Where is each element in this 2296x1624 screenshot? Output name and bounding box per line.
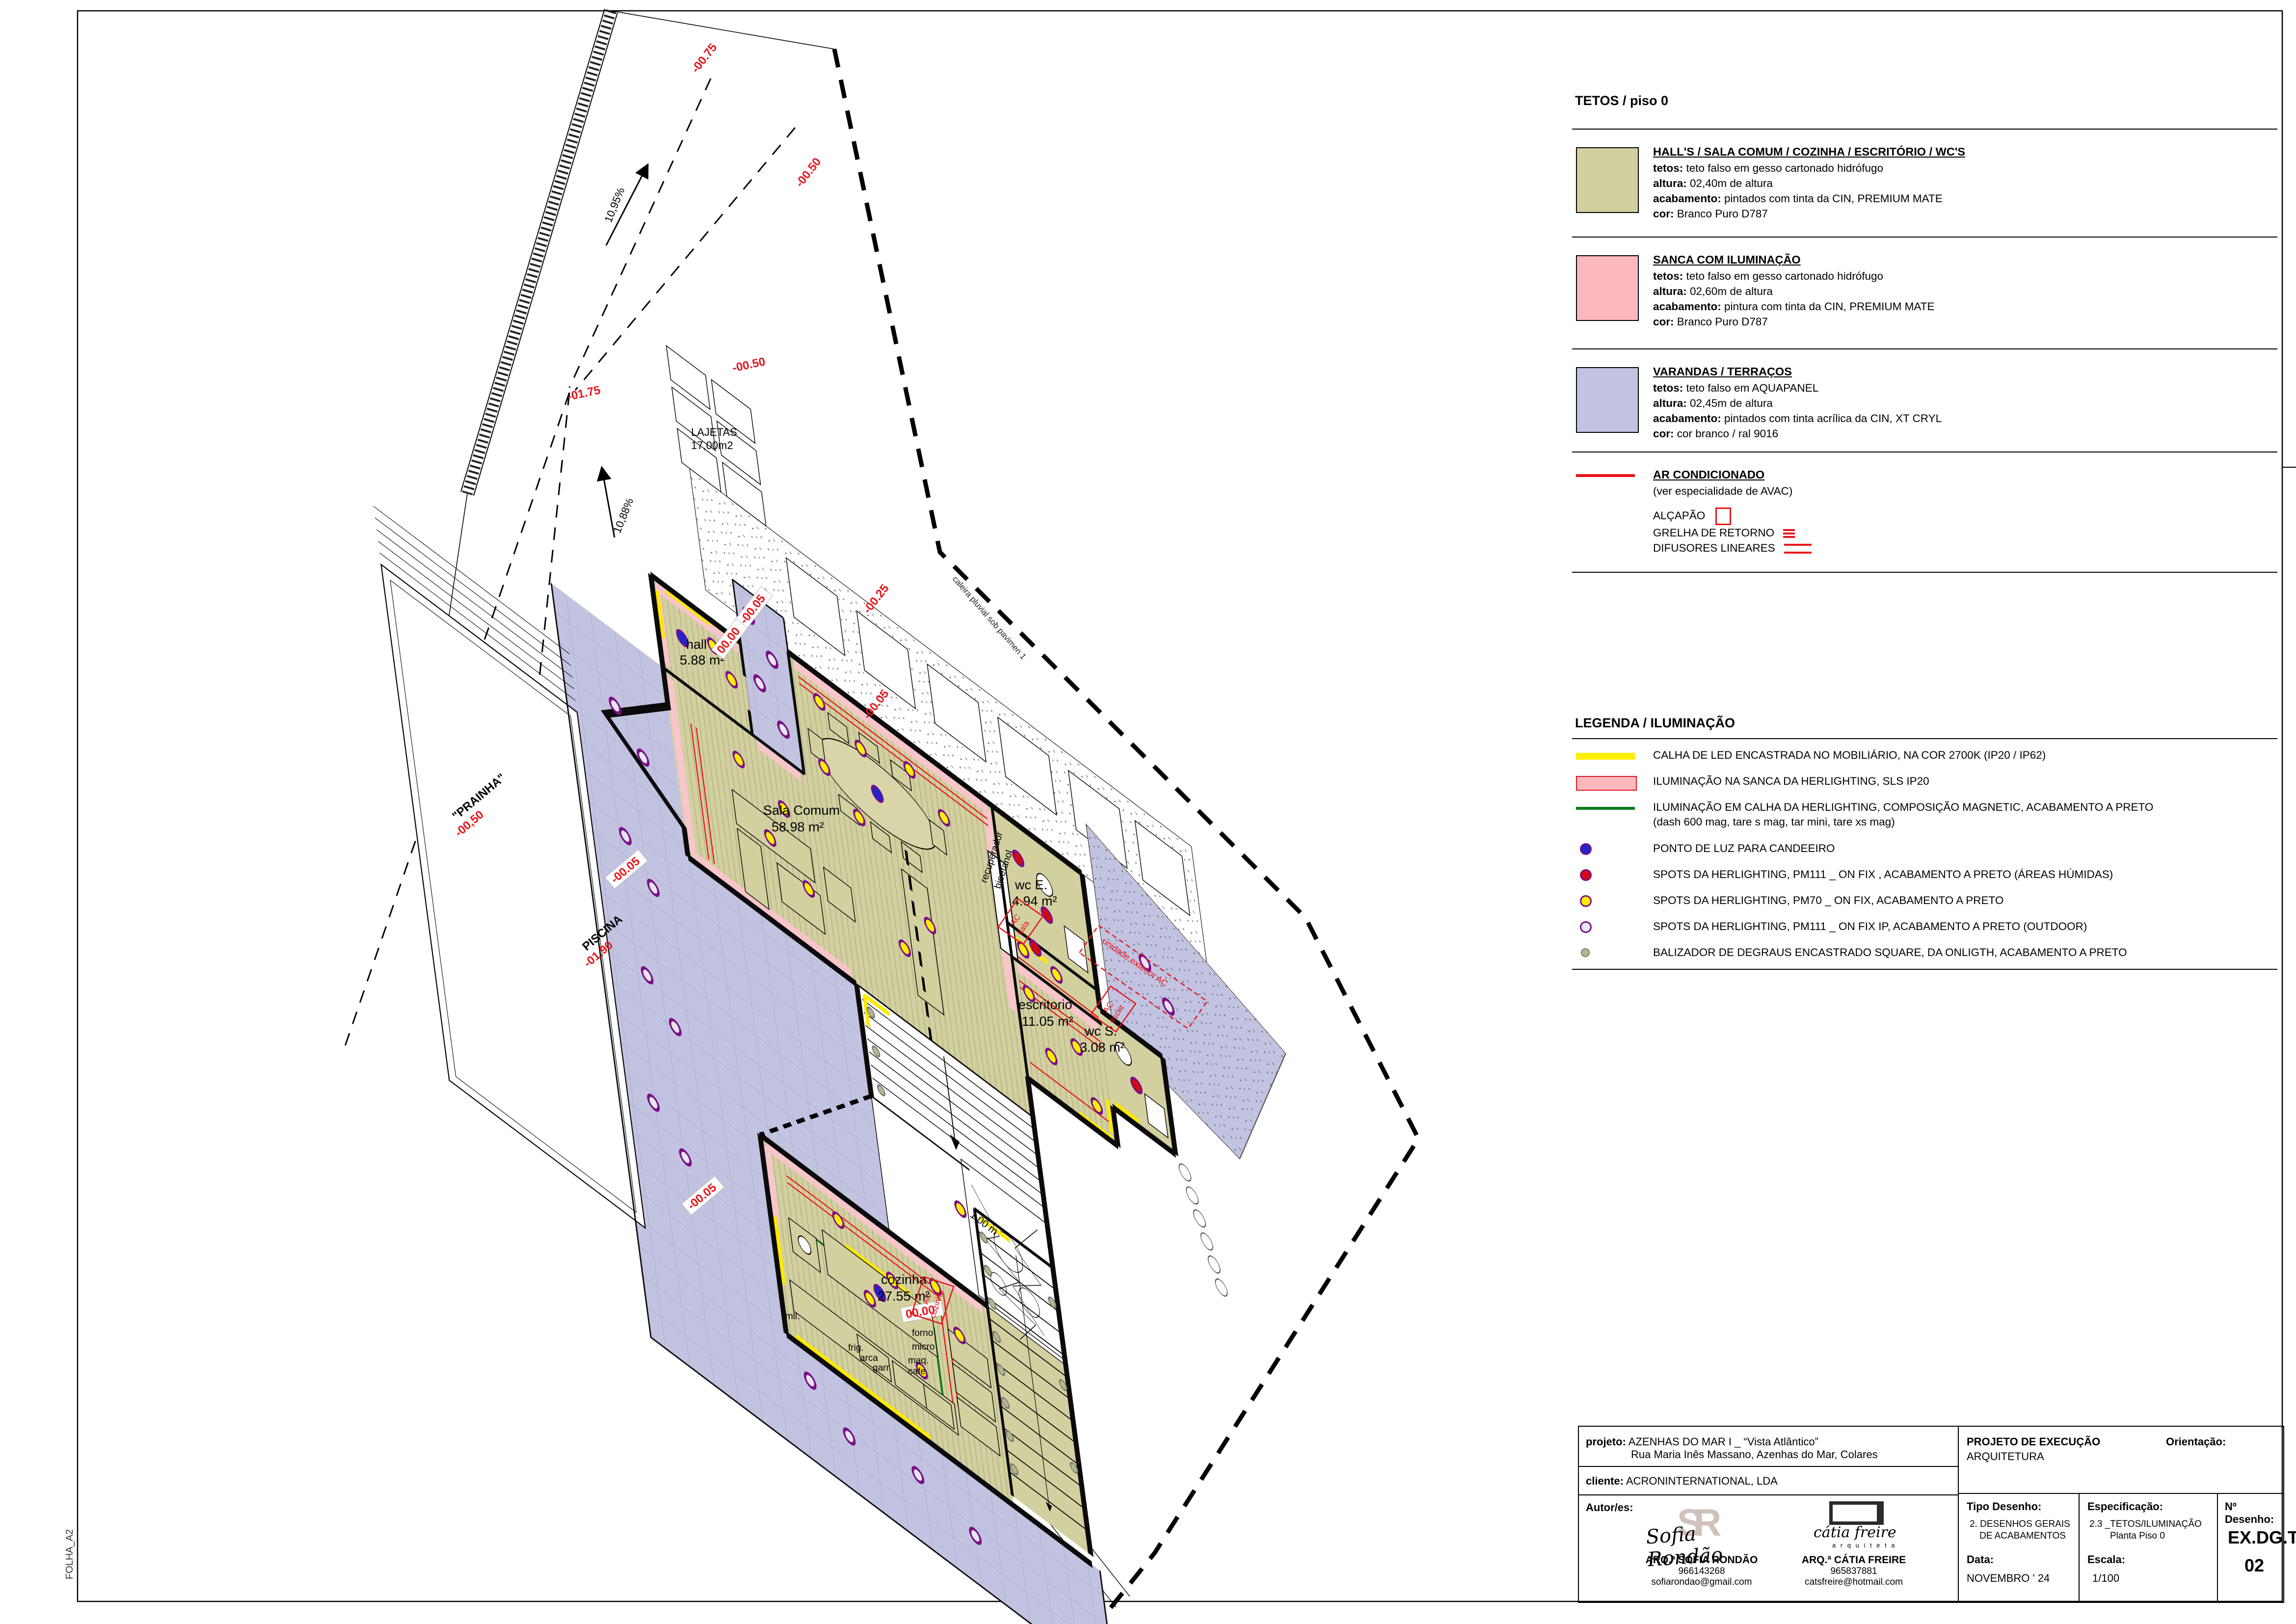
sig1-email: sofiarondao@gmail.com [1638,1577,1765,1588]
data-value: NOVEMBRO ' 24 [1967,1572,2050,1585]
key: altura: [1653,177,1687,189]
projeto-address: Rua Maria Inês Massano, Azenhas do Mar, … [1631,1448,1878,1461]
varandas-color-swatch [1576,367,1639,433]
value: cor branco / ral 9016 [1674,427,1779,440]
room-label-escritorio: escritorio [1018,997,1072,1012]
cliente-row: cliente: ACRONINTERNATIONAL, LDA [1586,1475,1778,1488]
catia-logo-icon [1829,1501,1884,1525]
data-label: Data: [1967,1553,1994,1566]
ramp1-label: 10,95% [602,186,627,224]
escala-value: 1/100 [2092,1572,2119,1585]
escala-label: Escala: [2087,1553,2125,1566]
key: altura: [1653,285,1687,297]
ilum-item-text: SPOTS DA HERLIGHTING, PM111 _ ON FIX , A… [1653,868,2113,881]
alcapao-row: ALÇAPÃO [1653,507,2277,525]
lajetas-area: 17,00m2 [691,439,733,452]
sanca-color-swatch [1576,255,1639,321]
legend-item-varandas: VARANDAS / TERRAÇOS tetos: teto falso em… [1572,364,2277,441]
value: teto falso em gesso cartonado hidrófugo [1683,162,1883,174]
iluminacao-legend: LEGENDA / ILUMINAÇÃO CALHA DE LED ENCAST… [1572,716,2281,735]
value: pintura com tinta da CIN, PREMIUM MATE [1721,300,1935,313]
pm70-dot-icon [1580,895,1592,907]
ilum-item-pm111-outdoor: SPOTS DA HERLIGHTING, PM111 _ ON FIX IP,… [1572,917,2281,943]
key: altura: [1653,397,1687,409]
especificacao-label: Especificação: [2087,1500,2163,1513]
divider [1572,738,2277,739]
ilum-item-pm111: SPOTS DA HERLIGHTING, PM111 _ ON FIX , A… [1572,865,2281,891]
value: teto falso em AQUAPANEL [1683,382,1818,394]
grelha-row: GRELHA DE RETORNO [1653,525,2277,540]
divider [1572,348,2277,349]
level-050b: -00.50 [731,355,767,375]
kitchen-forno-label: forno [912,1328,933,1338]
balizador-dot-icon [1581,948,1590,957]
lajetas-label: LAJETAS [691,426,737,438]
room-area-sala: 58.98 m² [772,820,824,834]
ilum-item-led: CALHA DE LED ENCASTRADA NO MOBILIÁRIO, N… [1572,746,2281,772]
title-block: projeto: AZENHAS DO MAR I _ “Vista Atlân… [1578,1426,2284,1603]
key: tetos: [1653,382,1683,394]
divider [1572,237,2277,238]
ilum-item-text: ILUMINAÇÃO NA SANCA DA HERLIGHTING, SLS … [1653,775,1929,788]
ilum-item-text: PONTO DE LUZ PARA CANDEEIRO [1653,842,1835,855]
level-175: -01.75 [566,383,602,403]
ilum-item-subtext: (dash 600 mag, tare s mag, tar mini, tar… [1653,816,1895,828]
kitchen-micro-label: micro [912,1342,934,1352]
value: Branco Puro D787 [1674,208,1768,220]
projeto-execucao-label: PROJETO DE EXECUÇÃO [1967,1436,2100,1448]
room-area-escritorio: 11.05 m² [1022,1014,1073,1029]
legend-item-title: SANCA COM ILUMINAÇÃO [1653,252,2277,267]
ac-title: AR CONDICIONADO [1653,467,2277,482]
kitchen-mll-label: mll. [785,1311,800,1322]
catia-signature: cátia freire [1814,1524,1896,1541]
legend-item-sanca: SANCA COM ILUMINAÇÃO tetos: teto falso e… [1572,252,2277,329]
num-desenho-code: EX.DG.TI. [2228,1527,2296,1548]
room-area-wce: 4.94 m² [1012,894,1057,908]
halls-color-swatch [1576,147,1639,213]
sig2-email: catsfreire@hotmail.com [1785,1577,1922,1588]
value: teto falso em gesso cartonado hidrófugo [1683,270,1883,282]
key: cor: [1653,316,1674,328]
ilum-item-balizador: BALIZADOR DE DEGRAUS ENCASTRADO SQUARE, … [1572,943,2281,969]
room-area-wcs: 3.08 m² [1080,1040,1125,1055]
alcapao-label: ALÇAPÃO [1653,509,1705,522]
divider [1572,572,2277,573]
ilum-item-text: BALIZADOR DE DEGRAUS ENCASTRADO SQUARE, … [1653,946,2127,959]
legend-item-title: HALL'S / SALA COMUM / COZINHA / ESCRITÓR… [1653,144,2277,160]
caleira-label: caleira pluvial sob pavimen 1 [951,574,1028,661]
ilum-item-text: SPOTS DA HERLIGHTING, PM70 _ ON FIX, ACA… [1653,894,2003,907]
grelha-label: GRELHA DE RETORNO [1653,527,1774,539]
key: cor: [1653,427,1674,440]
room-label-wce: wc E. [1015,878,1047,892]
ilum-item-pm70: SPOTS DA HERLIGHTING, PM70 _ ON FIX, ACA… [1572,891,2281,917]
key: tetos: [1653,270,1683,282]
arquitetura-label: ARQUITETURA [1967,1450,2044,1463]
divider [2079,1493,2080,1602]
num-desenho-number: 02 [2244,1555,2264,1576]
projeto-value: AZENHAS DO MAR I _ “Vista Atlântico” [1629,1436,1818,1448]
alcapao-icon [1715,507,1731,525]
sofia-signature: Sofia Rondão [1645,1518,1767,1571]
room-label-hall: hall [686,637,707,652]
value: 02,40m de altura [1687,177,1773,189]
value: pintados com tinta da CIN, PREMIUM MATE [1721,192,1943,205]
ac-note: (ver especialidade de AVAC) [1653,483,2277,499]
especificacao-value1: 2.3 _TETOS/ILUMINAÇÃO [2089,1519,2202,1530]
key: tetos: [1653,162,1683,174]
divider [1579,1466,1958,1467]
kitchen-garr-label: garr. [873,1363,891,1373]
difusores-row: DIFUSORES LINEARES [1653,540,2277,556]
key: acabamento: [1653,192,1721,205]
ramp2-label: 10,88% [611,496,636,535]
tipo-desenho-value1: 2. DESENHOS GERAIS [1970,1519,2070,1530]
divider [1958,1493,2283,1494]
sig2-name: ARQ.ª CÁTIA FREIRE [1785,1554,1922,1566]
value: 02,60m de altura [1687,285,1773,297]
divider [1958,1427,1959,1602]
catia-arquiteta: a r q u i t e t a [1832,1542,1896,1549]
difusores-label: DIFUSORES LINEARES [1653,542,1775,554]
room-label-sala: Sala Comum [763,803,840,818]
value: 02,45m de altura [1687,397,1773,409]
ilum-item-sanca: ILUMINAÇÃO NA SANCA DA HERLIGHTING, SLS … [1572,772,2281,798]
legend-item-halls: HALL'S / SALA COMUM / COZINHA / ESCRITÓR… [1572,144,2277,221]
legend-item-title: VARANDAS / TERRAÇOS [1653,364,2277,379]
cliente-key: cliente: [1586,1475,1624,1487]
projeto-key: projeto: [1586,1436,1626,1448]
pm111-dot-icon [1580,869,1592,881]
ilum-item-text: CALHA DE LED ENCASTRADA NO MOBILIÁRIO, N… [1653,749,2046,762]
tipo-desenho-value2: DE ACABAMENTOS [1979,1531,2066,1542]
stepping-stones [1178,1161,1228,1299]
led-strip-icon [1576,753,1635,760]
candeeiro-dot-icon [1580,843,1592,855]
key: cor: [1653,208,1674,220]
ilum-item-text: SPOTS DA HERLIGHTING, PM111 _ ON FIX IP,… [1653,920,2087,933]
kitchen-maq-label-2: cafe [908,1366,926,1377]
divider [1572,452,2277,453]
value: pintados com tinta acrílica da CIN, XT C… [1721,412,1942,425]
signature-catia: cátia freire a r q u i t e t a ARQ.ª CÁT… [1785,1500,1922,1588]
projeto-row: projeto: AZENHAS DO MAR I _ “Vista Atlân… [1586,1436,1878,1461]
kitchen-maq-label-1: maq. [908,1356,929,1366]
especificacao-value2: Planta Piso 0 [2110,1531,2165,1542]
sanca-light-icon [1576,776,1637,791]
pm111-outdoor-dot-icon [1580,921,1592,933]
magnetic-track-icon [1576,807,1635,810]
iluminacao-legend-title: LEGENDA / ILUMINAÇÃO [1575,716,2281,731]
sig2-phone: 965837881 [1785,1566,1922,1577]
drawing-sheet: FOLHA_A2 [0,0,2296,1624]
ilum-item-magnetic: ILUMINAÇÃO EM CALHA DA HERLIGHTING, COMP… [1572,798,2281,837]
divider [2217,1493,2218,1602]
room-label-wcs: wc S. [1084,1024,1117,1038]
key: acabamento: [1653,412,1721,425]
level-050a: -00.50 [793,155,824,189]
cliente-value: ACRONINTERNATIONAL, LDA [1626,1475,1778,1487]
autores-key: Autor/es: [1586,1501,1633,1514]
value: Branco Puro D787 [1674,316,1768,328]
building-plan [318,83,1398,1624]
level-075: -00.75 [689,41,720,75]
divider [1579,1494,1958,1495]
legend-column: TETOS / piso 0 HALL'S / SALA COMUM / COZ… [1572,93,2281,112]
divider [1572,969,2277,970]
num-desenho-label: Nº Desenho: [2225,1500,2283,1526]
signature-sofia: SR Sofia Rondão ARQ.ª SOFIA RONDÃO 96614… [1638,1500,1765,1588]
tetos-legend-title: TETOS / piso 0 [1575,93,2281,108]
key: acabamento: [1653,300,1721,313]
kitchen-frig-label: frig. [848,1343,864,1353]
sheet-size-label: FOLHA_A2 [64,1529,75,1579]
ilum-item-candeeiro: PONTO DE LUZ PARA CANDEEIRO [1572,839,2281,865]
ac-line-icon [1576,474,1635,477]
tipo-desenho-label: Tipo Desenho: [1967,1500,2041,1513]
legend-item-ac: AR CONDICIONADO (ver especialidade de AV… [1572,467,2277,556]
ilum-item-text: ILUMINAÇÃO EM CALHA DA HERLIGHTING, COMP… [1653,801,2153,814]
room-label-cozinha: cozinha [881,1272,927,1287]
difusores-lineares-icon [1784,544,1812,554]
kitchen-arca-label: arca [860,1353,878,1363]
grelha-retorno-icon [1783,529,1795,538]
divider [1572,129,2277,130]
orientacao-label: Orientação: [2166,1436,2226,1448]
